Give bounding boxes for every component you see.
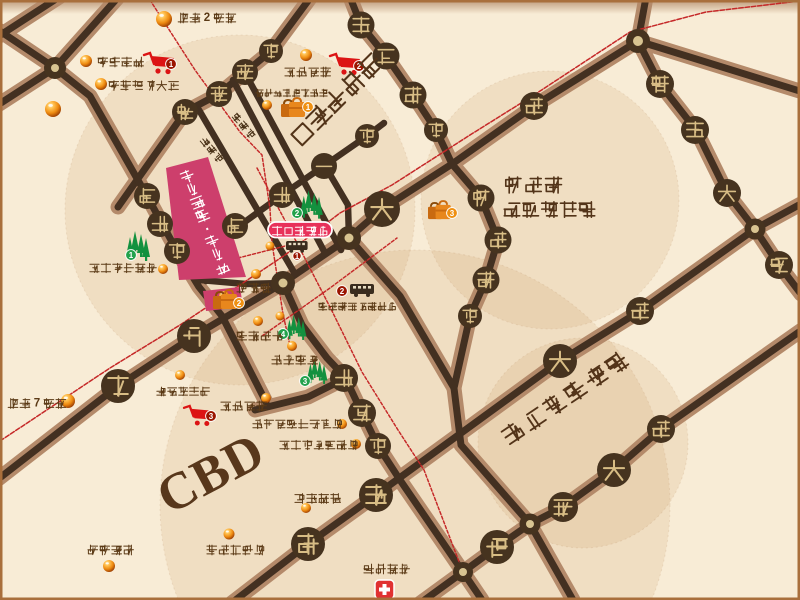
svg-text:7: 7	[34, 398, 40, 410]
svg-text:1: 1	[295, 252, 300, 261]
svg-text:3: 3	[209, 412, 214, 421]
svg-text:2: 2	[204, 12, 210, 24]
svg-text:2: 2	[295, 209, 300, 218]
svg-text:3: 3	[303, 377, 308, 386]
svg-text:1: 1	[129, 251, 134, 260]
svg-text:2: 2	[340, 287, 345, 296]
svg-text:1: 1	[306, 103, 311, 112]
svg-text:1: 1	[169, 60, 174, 69]
svg-text:3: 3	[450, 209, 455, 218]
svg-text:2: 2	[237, 299, 242, 308]
